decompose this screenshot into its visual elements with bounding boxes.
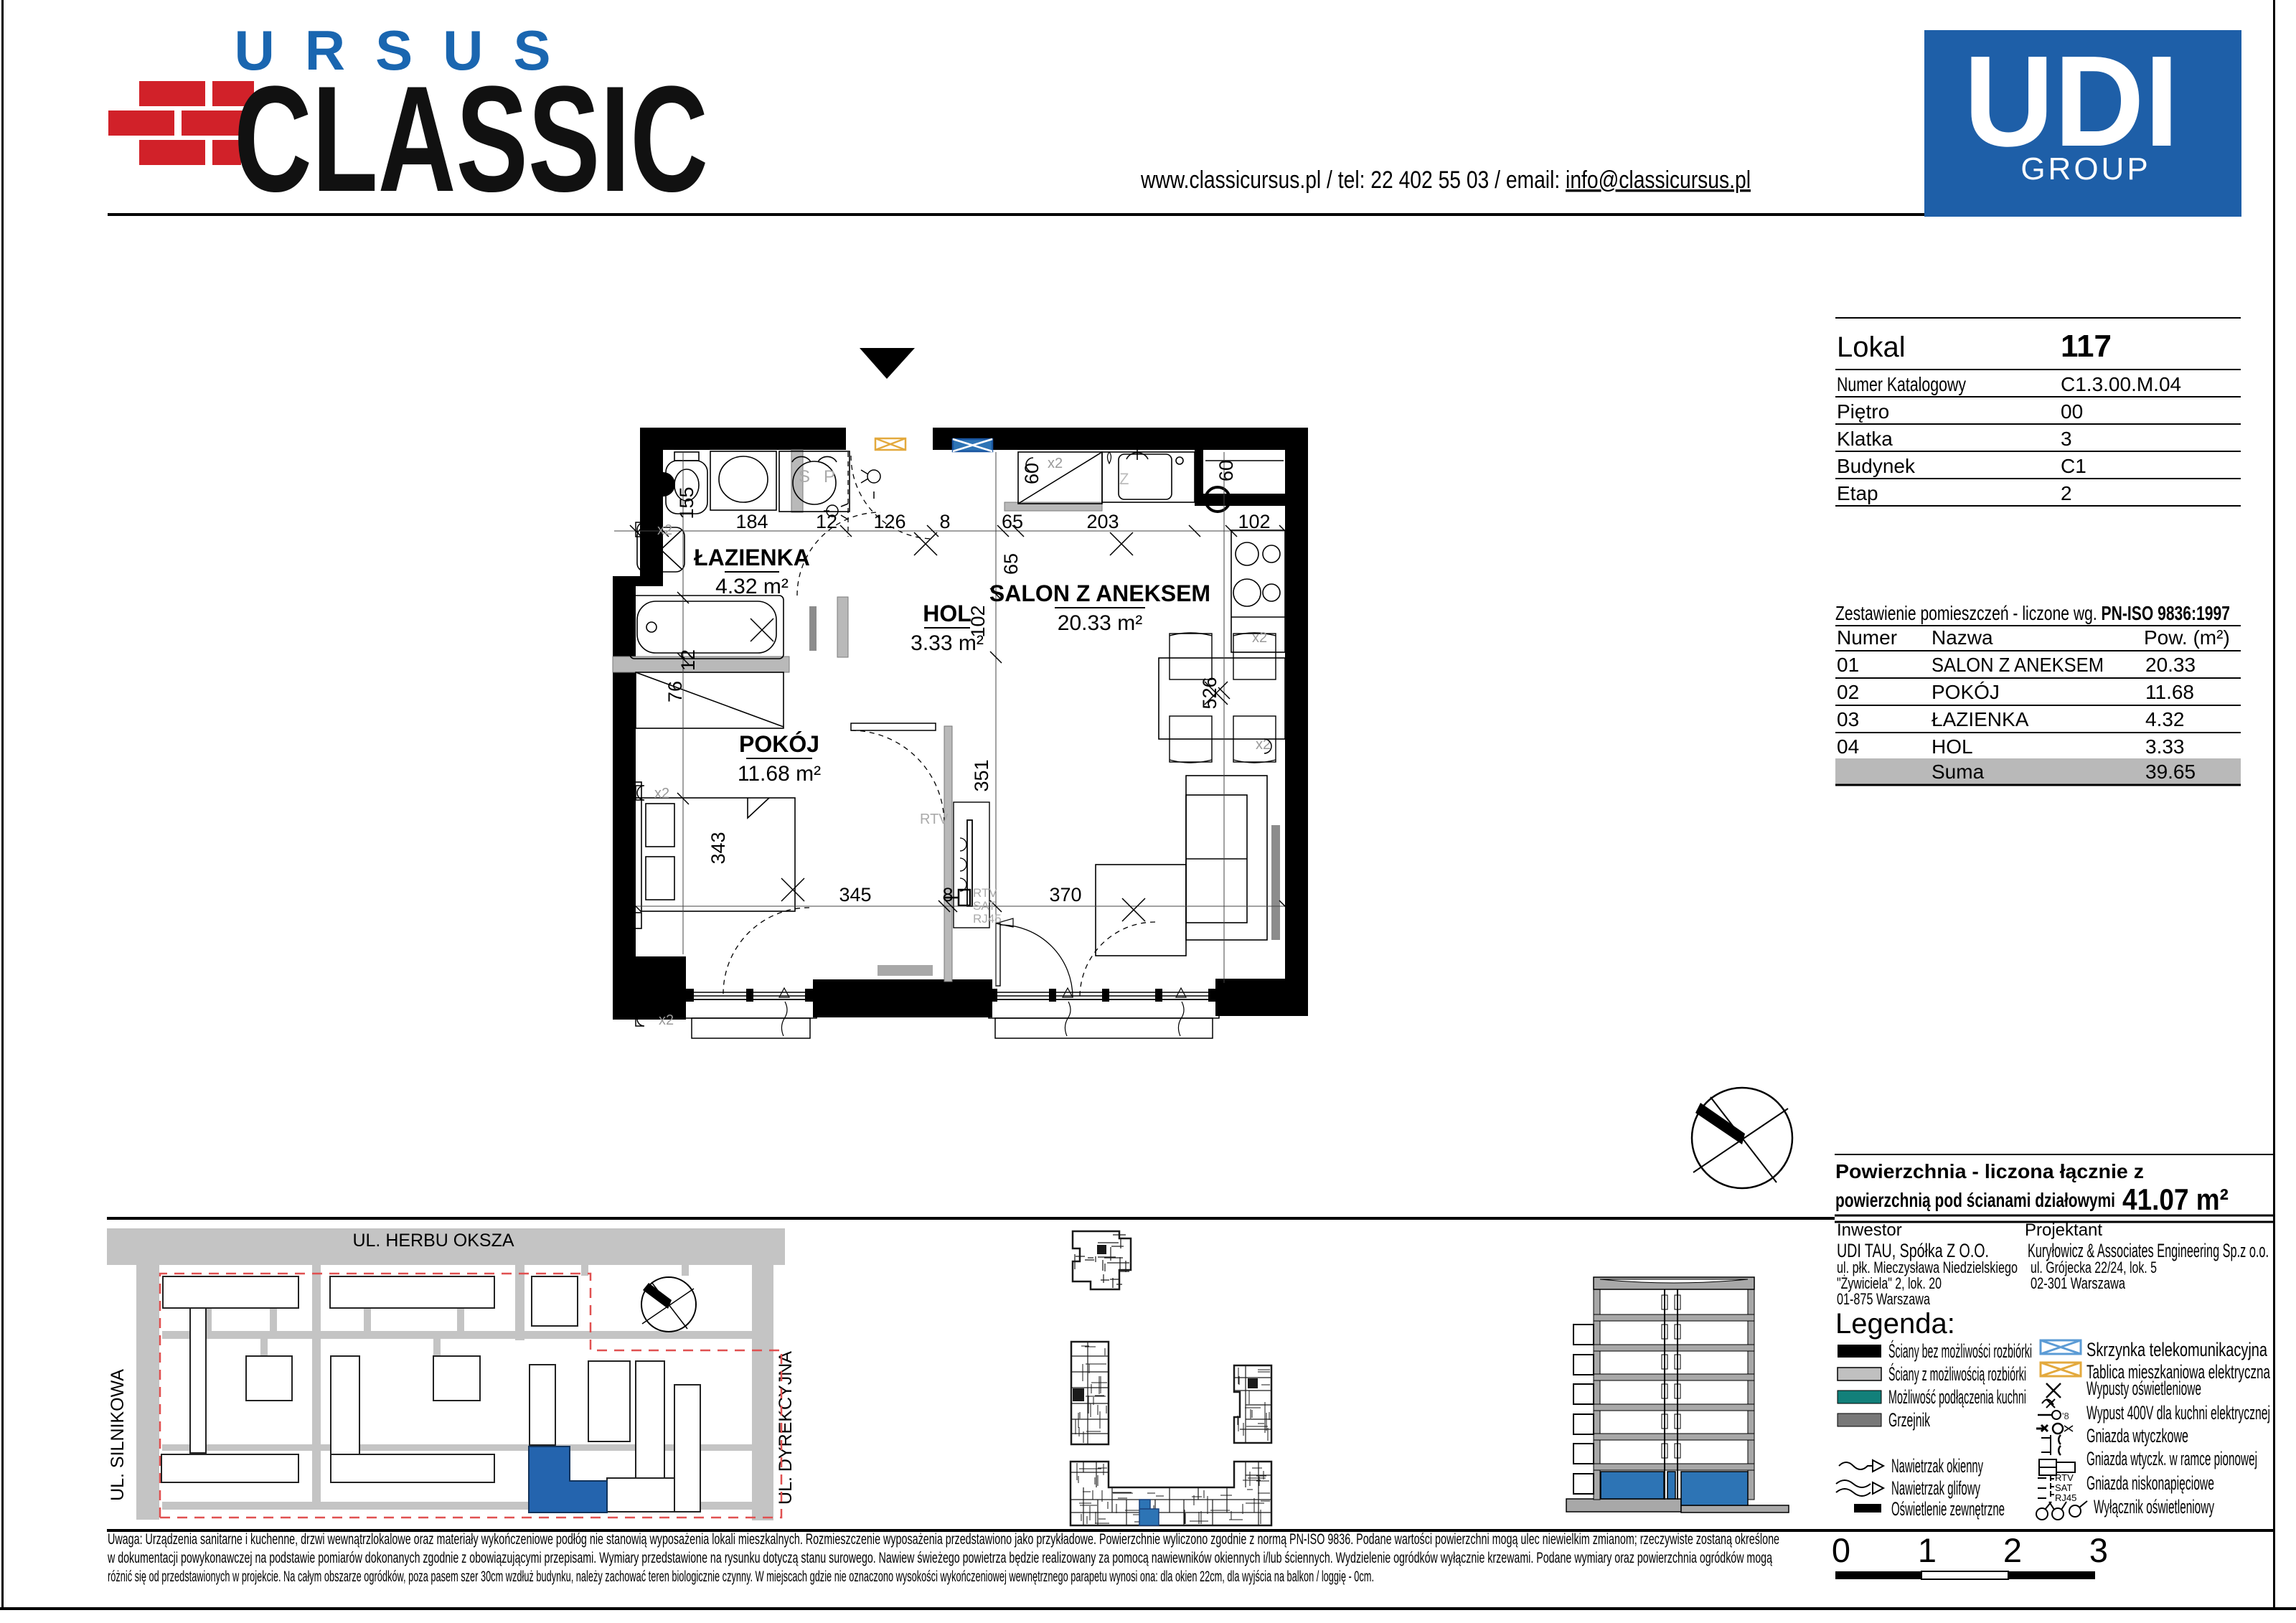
- svg-text:RTV: RTV: [920, 812, 949, 827]
- svg-text:UL. SILNIKOWA: UL. SILNIKOWA: [108, 1369, 128, 1501]
- svg-text:3.33 m²: 3.33 m²: [911, 631, 984, 655]
- svg-text:SAT: SAT: [2055, 1482, 2072, 1493]
- svg-text:x2: x2: [659, 1012, 674, 1028]
- svg-text:Gniazda niskonapięciowe: Gniazda niskonapięciowe: [2086, 1472, 2214, 1494]
- svg-text:Budynek: Budynek: [1837, 455, 1916, 477]
- svg-text:Nawietrzak glifowy: Nawietrzak glifowy: [1891, 1477, 1980, 1499]
- svg-text:Suma: Suma: [1932, 761, 1985, 783]
- svg-text:RTV: RTV: [2055, 1472, 2074, 1483]
- svg-text:różnić się od przedstawionych: różnić się od przedstawionych w projekci…: [108, 1568, 1374, 1585]
- svg-text:C1: C1: [2061, 455, 2086, 477]
- svg-text:2: 2: [2061, 482, 2072, 504]
- svg-text:Projektant: Projektant: [2025, 1220, 2102, 1240]
- svg-text:Nawietrzak okienny: Nawietrzak okienny: [1891, 1455, 1983, 1477]
- svg-text:powierzchnią pod ścianami dzia: powierzchnią pod ścianami działowymi: [1835, 1189, 2115, 1211]
- svg-text:11.68: 11.68: [2145, 681, 2194, 703]
- svg-text:20.33 m²: 20.33 m²: [1058, 611, 1142, 635]
- svg-text:ŁAZIENKA: ŁAZIENKA: [1932, 708, 2029, 730]
- svg-text:02-301 Warszawa: 02-301 Warszawa: [2031, 1274, 2126, 1292]
- svg-text:SAT: SAT: [973, 899, 996, 913]
- svg-text:345: 345: [839, 884, 871, 905]
- svg-text:4.32: 4.32: [2145, 708, 2185, 730]
- svg-text:Z: Z: [1119, 470, 1129, 488]
- svg-text:Numer: Numer: [1837, 626, 1897, 649]
- svg-text:x2: x2: [1252, 630, 1267, 646]
- svg-text:Powierzchnia - liczona łącznie: Powierzchnia - liczona łącznie z: [1835, 1160, 2144, 1182]
- svg-text:155: 155: [676, 486, 697, 519]
- svg-text:Lokal: Lokal: [1837, 331, 1906, 363]
- svg-text:102: 102: [1238, 511, 1270, 532]
- svg-text:HOL: HOL: [923, 601, 971, 626]
- svg-text:8: 8: [939, 511, 950, 532]
- svg-text:12: 12: [816, 511, 837, 532]
- svg-text:117: 117: [2061, 329, 2112, 364]
- svg-text:Inwestor: Inwestor: [1837, 1220, 1902, 1240]
- svg-text:39.65: 39.65: [2145, 761, 2196, 783]
- svg-text:Gniazda wtyczk. w ramce pionow: Gniazda wtyczk. w ramce pionowej: [2086, 1448, 2257, 1469]
- svg-text:x2: x2: [1256, 737, 1271, 753]
- svg-text:S: S: [799, 467, 810, 486]
- svg-text:02: 02: [1837, 681, 1859, 703]
- svg-text:CLASSIC: CLASSIC: [234, 55, 708, 223]
- svg-text:P: P: [824, 467, 835, 486]
- svg-text:1: 1: [1918, 1531, 1937, 1569]
- svg-text:UL. DYREKCYJNA: UL. DYREKCYJNA: [776, 1351, 796, 1505]
- svg-text:01-875 Warszawa: 01-875 Warszawa: [1837, 1290, 1931, 1308]
- svg-text:x2: x2: [657, 522, 672, 538]
- svg-text:60: 60: [1215, 460, 1237, 481]
- svg-text:POKÓJ: POKÓJ: [1932, 681, 2000, 703]
- svg-text:Zestawienie pomieszczeń - licz: Zestawienie pomieszczeń - liczone wg. PN…: [1835, 602, 2230, 624]
- svg-text:41.07 m²: 41.07 m²: [2122, 1182, 2229, 1216]
- svg-text:Oświetlenie zewnętrzne: Oświetlenie zewnętrzne: [1891, 1498, 2005, 1520]
- svg-text:Ściany z możliwością rozbiórki: Ściany z możliwością rozbiórki: [1888, 1362, 2026, 1385]
- svg-text:RJ45: RJ45: [973, 912, 1002, 926]
- svg-text:12: 12: [677, 649, 699, 671]
- svg-text:76: 76: [664, 681, 686, 702]
- svg-text:x2: x2: [1048, 456, 1063, 471]
- svg-text:SALON Z ANEKSEM: SALON Z ANEKSEM: [1932, 654, 2104, 676]
- svg-text:20.33: 20.33: [2145, 654, 2196, 676]
- svg-text:Wyłącznik oświetleniowy: Wyłącznik oświetleniowy: [2094, 1496, 2214, 1518]
- svg-text:343: 343: [707, 832, 729, 864]
- svg-text:x2: x2: [654, 786, 669, 801]
- svg-text:Etap: Etap: [1837, 482, 1878, 504]
- svg-text:0: 0: [1832, 1531, 1850, 1569]
- svg-text:Skrzynka telekomunikacyjna: Skrzynka telekomunikacyjna: [2086, 1339, 2268, 1360]
- svg-text:www.classicursus.pl / tel: 22: www.classicursus.pl / tel: 22 402 55 03 …: [1140, 166, 1751, 194]
- svg-text:3.33: 3.33: [2145, 735, 2185, 758]
- svg-text:3: 3: [2089, 1531, 2108, 1569]
- svg-text:351: 351: [971, 759, 992, 791]
- svg-text:Nazwa: Nazwa: [1932, 626, 1993, 649]
- svg-text:526: 526: [1199, 677, 1220, 709]
- svg-text:Ściany bez możliwości rozbiórk: Ściany bez możliwości rozbiórki: [1888, 1339, 2032, 1362]
- svg-text:Grzejnik: Grzejnik: [1888, 1409, 1930, 1431]
- svg-text:04: 04: [1837, 735, 1859, 758]
- svg-text:Gniazda wtyczkowe: Gniazda wtyczkowe: [2086, 1425, 2188, 1446]
- svg-text:Legenda:: Legenda:: [1835, 1308, 1955, 1340]
- svg-text:UL. HERBU OKSZA: UL. HERBU OKSZA: [352, 1231, 514, 1251]
- svg-text:60: 60: [1021, 463, 1043, 484]
- svg-text:65: 65: [1002, 511, 1023, 532]
- svg-text:3: 3: [2061, 428, 2072, 450]
- svg-text:184: 184: [735, 511, 768, 532]
- svg-text:Klatka: Klatka: [1837, 428, 1893, 450]
- svg-text:C1.3.00.M.04: C1.3.00.M.04: [2061, 373, 2181, 395]
- svg-text:HOL: HOL: [1932, 735, 1973, 758]
- svg-text:Numer Katalogowy: Numer Katalogowy: [1837, 373, 1966, 395]
- svg-text:Uwaga: Urządzenia sanitarne i: Uwaga: Urządzenia sanitarne i kuchenne, …: [108, 1531, 1779, 1548]
- svg-text:03: 03: [1837, 708, 1859, 730]
- svg-text:4.32 m²: 4.32 m²: [715, 575, 789, 598]
- svg-text:00: 00: [2061, 400, 2083, 423]
- svg-text:GROUP: GROUP: [2020, 151, 2150, 187]
- svg-text:203: 203: [1086, 511, 1119, 532]
- svg-text:Piętro: Piętro: [1837, 400, 1889, 423]
- svg-text:01: 01: [1837, 654, 1859, 676]
- svg-text:POKÓJ: POKÓJ: [739, 731, 819, 757]
- svg-text:8: 8: [942, 884, 953, 905]
- svg-text:'8: '8: [2062, 1411, 2069, 1421]
- svg-text:ŁAZIENKA: ŁAZIENKA: [694, 545, 810, 570]
- svg-text:126: 126: [873, 511, 905, 532]
- svg-text:370: 370: [1049, 884, 1081, 905]
- svg-text:RTV: RTV: [973, 886, 997, 900]
- svg-text:11.68 m²: 11.68 m²: [738, 762, 821, 786]
- svg-text:Wypusty oświetleniowe: Wypusty oświetleniowe: [2086, 1378, 2201, 1399]
- svg-text:65: 65: [1000, 553, 1022, 575]
- svg-text:Wypust 400V dla kuchni elektry: Wypust 400V dla kuchni elektrycznej: [2086, 1402, 2270, 1424]
- svg-text:w dokumentacji powykonawczej n: w dokumentacji powykonawczej na podstawi…: [107, 1550, 1772, 1566]
- svg-text:Możliwość podłączenia kuchni: Możliwość podłączenia kuchni: [1888, 1386, 2026, 1408]
- svg-text:Pow. (m²): Pow. (m²): [2144, 626, 2230, 649]
- svg-text:2: 2: [2003, 1531, 2022, 1569]
- svg-text:SALON Z ANEKSEM: SALON Z ANEKSEM: [989, 580, 1210, 606]
